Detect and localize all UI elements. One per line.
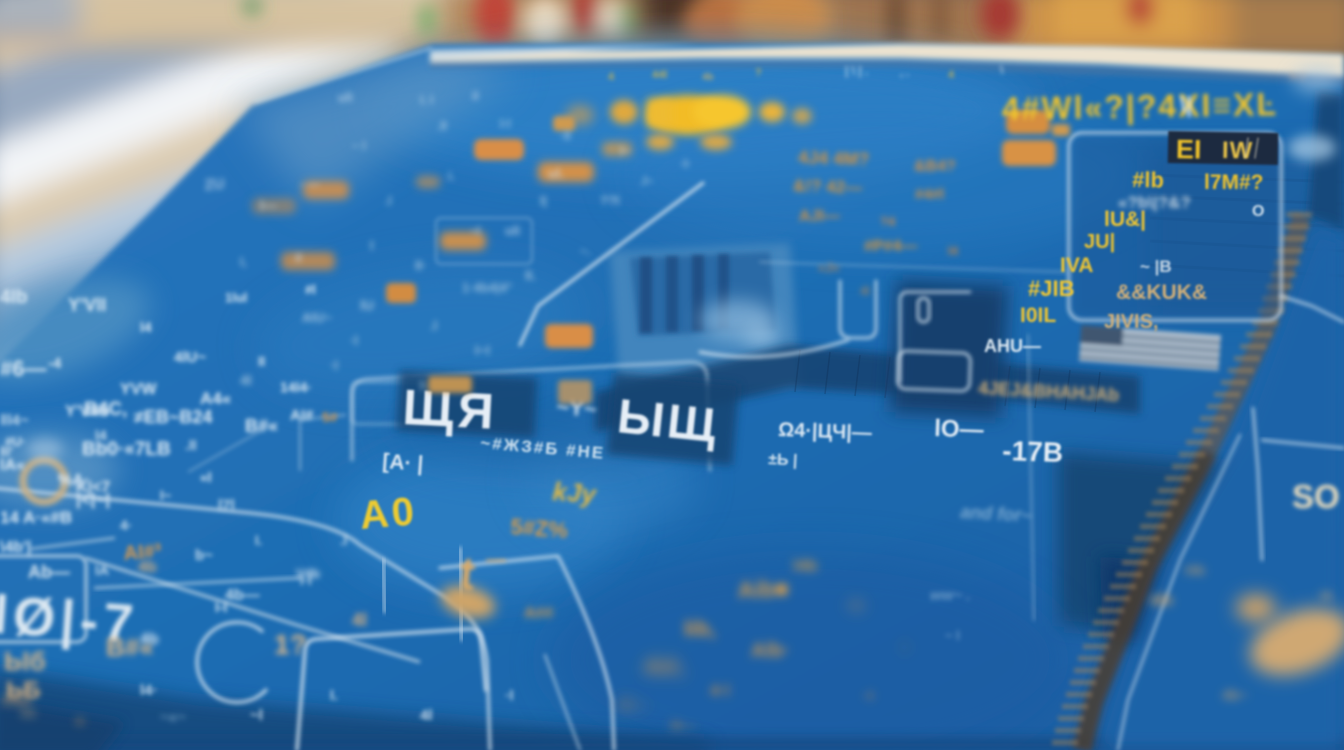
svg-text:&B4?: &B4? (914, 158, 956, 175)
svg-text:\4b'|: \4b'| (0, 539, 31, 556)
svg-text:l·l: l·l (500, 117, 511, 131)
svg-text:5#: 5# (322, 409, 338, 425)
svg-text:IVA: IVA (1060, 254, 1093, 277)
svg-text:«J«: «J« (818, 260, 840, 275)
svg-text:and for~: and for~ (960, 502, 1033, 526)
svg-text:B#«: B#« (106, 632, 154, 662)
svg-text:4J4 4M?: 4J4 4M? (798, 147, 870, 169)
svg-text:‖l4~: ‖l4~ (0, 412, 29, 429)
svg-text:[A· |: [A· | (382, 450, 424, 476)
svg-text:il: il (472, 89, 479, 103)
svg-text:?4: ?4 (880, 214, 896, 229)
svg-text:1lul: 1lul (225, 290, 247, 305)
svg-text:~ l: ~ l (945, 628, 960, 643)
svg-text:4·: 4· (120, 517, 132, 533)
svg-text:lA«: lA« (0, 457, 25, 474)
svg-text:.l: .l (385, 194, 392, 208)
svg-text:l: l (370, 238, 374, 253)
svg-text:Bb0·«7LB: Bb0·«7LB (82, 439, 171, 460)
svg-text:lA: lA (1320, 588, 1334, 603)
svg-text:4l: 4l (240, 372, 252, 388)
svg-text:IW: IW (1222, 137, 1254, 165)
svg-text:AI#: AI# (290, 407, 314, 424)
svg-text:l·: l· (902, 640, 910, 655)
svg-text:kJy: kJy (552, 476, 599, 509)
svg-text:Ыб: Ыб (4, 646, 46, 676)
svg-text:i.: i. (448, 169, 455, 183)
svg-text:l—: l— (260, 198, 277, 213)
svg-text:ll·: ll· (415, 258, 427, 273)
svg-text:EI: EI (1176, 134, 1202, 164)
svg-text:, .: , . (900, 67, 909, 79)
svg-text:~ l: ~ l (352, 139, 366, 153)
svg-text:YVW: YVW (120, 381, 157, 398)
svg-text:l,: l, (240, 255, 247, 269)
svg-text:l~: l~ (160, 488, 172, 503)
svg-text:.l: .l (430, 318, 437, 333)
svg-text:?: ? (755, 67, 762, 79)
svg-text:&&KUK&: &&KUK& (1116, 281, 1207, 304)
svg-text:lO—: lO— (934, 415, 984, 444)
svg-text:ul.: ul. (548, 165, 564, 181)
svg-text:1·4b4|4°: 1·4b4|4° (462, 280, 512, 295)
svg-text:#JIB: #JIB (1028, 276, 1074, 301)
svg-text:ll: ll (258, 354, 265, 369)
svg-text:l7l: l7l (218, 497, 235, 514)
svg-text:4·: 4· (75, 713, 87, 729)
svg-text:l4b: l4b (1185, 562, 1205, 578)
svg-text:·l: ·l (505, 687, 514, 703)
svg-text:Y'VlI: Y'VlI (68, 295, 106, 315)
svg-text:V4b: V4b (296, 566, 320, 581)
svg-text:4l: 4l (860, 284, 870, 298)
svg-text:·4: ·4 (862, 688, 874, 703)
svg-text:??l: ??l (600, 193, 620, 208)
svg-text:l·: l· (420, 378, 428, 393)
svg-text:Ω4·|ЦЧ|—: Ω4·|ЦЧ|— (778, 419, 872, 444)
svg-text:4: 4 (608, 71, 615, 83)
svg-text:\|: \| (1180, 92, 1192, 117)
svg-text:l4b: l4b (793, 556, 818, 575)
svg-text:14l4·: 14l4· (280, 379, 312, 395)
svg-text:#4#l: #4#l (915, 186, 944, 203)
svg-text:4#Wl«?|?4XI≡XĿ: 4#Wl«?|?4XI≡XĿ (1001, 86, 1278, 127)
svg-text:4l—: 4l— (618, 697, 647, 714)
svg-text:#6—: #6— (0, 356, 46, 381)
svg-text:AlU~: AlU~ (302, 310, 332, 325)
svg-text:44l: 44l (652, 69, 667, 81)
svg-text:4l: 4l (352, 610, 367, 630)
svg-text:l4·: l4· (140, 682, 158, 699)
svg-text:ZU: ZU (204, 175, 225, 194)
svg-text:l7M#?: l7M#? (1204, 171, 1264, 194)
svg-text:l. l: l. l (420, 93, 433, 107)
svg-text:4·l: 4·l (710, 681, 730, 700)
svg-text:14 A·«#B: 14 A·«#B (0, 508, 72, 527)
svg-text:≠EB~B24: ≠EB~B24 (134, 407, 212, 427)
svg-text:4l: 4l (420, 707, 433, 724)
svg-text:#U·: #U· (5, 434, 26, 449)
svg-text:l~l: l~l (475, 343, 490, 358)
svg-text:SO: SO (1292, 478, 1340, 515)
svg-text:4b: 4b (702, 72, 714, 83)
svg-text:b~: b~ (195, 547, 213, 564)
svg-text:.ll: .ll (437, 119, 447, 133)
svg-text:-4: -4 (48, 355, 62, 372)
svg-text:ll.: ll. (525, 268, 536, 283)
svg-text:«l: «l (200, 469, 212, 485)
svg-text:#4J: #4J (2, 691, 30, 710)
svg-text:·l: ·l (330, 358, 338, 373)
svg-text:#P#4—: #P#4— (864, 238, 917, 255)
svg-text:%A·: %A· (58, 472, 89, 489)
svg-text:JU|: JU| (1084, 231, 1115, 253)
svg-text:uli: uli (337, 89, 353, 105)
svg-text:AJl—: AJl— (799, 208, 840, 225)
svg-text:.ll: .ll (185, 437, 197, 453)
svg-text:lU: lU (360, 297, 374, 313)
svg-text:l~: l~ (620, 144, 630, 158)
svg-text:#lb: #lb (1132, 167, 1164, 193)
svg-text:.l~: .l~ (640, 174, 654, 188)
svg-text:~«~: ~«~ (160, 709, 186, 726)
svg-text:l.: l. (330, 687, 338, 703)
svg-text:ЫЩ: ЫЩ (615, 390, 722, 453)
svg-text:lU&|: lU&| (1104, 208, 1146, 231)
svg-text:·ll: ·ll (560, 129, 571, 143)
svg-text:- —: - — (300, 177, 319, 191)
svg-text:~.: ~. (580, 244, 590, 258)
svg-text:~ |B: ~ |B (1140, 257, 1172, 276)
svg-text:4b: 4b (848, 597, 864, 613)
svg-text:Aib■: Aib■ (737, 575, 789, 603)
svg-text:Ai#,: Ai#, (644, 654, 684, 679)
svg-text:·l: ·l (350, 333, 358, 348)
svg-text:JIVIS,: JIVIS, (1104, 311, 1158, 333)
svg-text:AI#³: AI#³ (123, 540, 163, 565)
svg-text:~l: ~l (250, 707, 263, 724)
svg-text:&!? 42—: &!? 42— (793, 176, 863, 197)
svg-text:5#Z%: 5#Z% (510, 514, 569, 543)
svg-text:A0: A0 (358, 489, 419, 538)
svg-text:l4: l4 (948, 244, 958, 258)
svg-text:±Ь |: ±Ь | (768, 451, 798, 470)
svg-text:l|: l| (540, 194, 547, 208)
svg-text:~l: ~l (470, 224, 480, 238)
svg-text:—: — (486, 549, 506, 571)
svg-text:4Ib: 4Ib (0, 287, 27, 308)
svg-text:#l: #l (305, 282, 316, 297)
svg-text:Y'V4b: Y'V4b (65, 403, 109, 420)
svg-text:.l: .l (340, 533, 347, 548)
svg-text:uli: uli (505, 223, 520, 238)
svg-text:l.: l. (255, 533, 262, 548)
svg-text:Ab—: Ab— (28, 562, 70, 582)
svg-text:B#«: B#« (245, 416, 278, 436)
svg-text:1?: 1? (274, 629, 307, 660)
svg-text:-17B: -17B (1002, 435, 1064, 468)
svg-text:I0IL: I0IL (1020, 304, 1056, 327)
svg-text:O: O (1252, 203, 1264, 220)
svg-text:l4: l4 (140, 319, 152, 335)
svg-text:il: il (295, 251, 302, 265)
svg-text:·l·: ·l· (680, 157, 691, 171)
svg-text:l4—: l4— (670, 717, 696, 733)
svg-text:|<|~|: |<|~| (76, 490, 110, 509)
svg-text:AHU—: AHU— (984, 336, 1041, 356)
svg-text:4lU~: 4lU~ (174, 349, 206, 366)
svg-text:A4«: A4« (200, 389, 231, 408)
svg-text:ww~ .: ww~ . (930, 587, 970, 604)
svg-text:A##: A## (524, 605, 553, 622)
svg-text:| \ | .: | \ | . (845, 64, 868, 78)
svg-text:4: 4 (948, 69, 955, 81)
svg-text:Alb·: Alb· (751, 640, 790, 662)
svg-text:Iib,: Iib, (684, 616, 716, 641)
svg-text:4b—: 4b— (225, 587, 260, 604)
svg-text:4Ib: 4Ib (1149, 592, 1173, 610)
svg-text:4b~: 4b~ (1222, 687, 1249, 704)
